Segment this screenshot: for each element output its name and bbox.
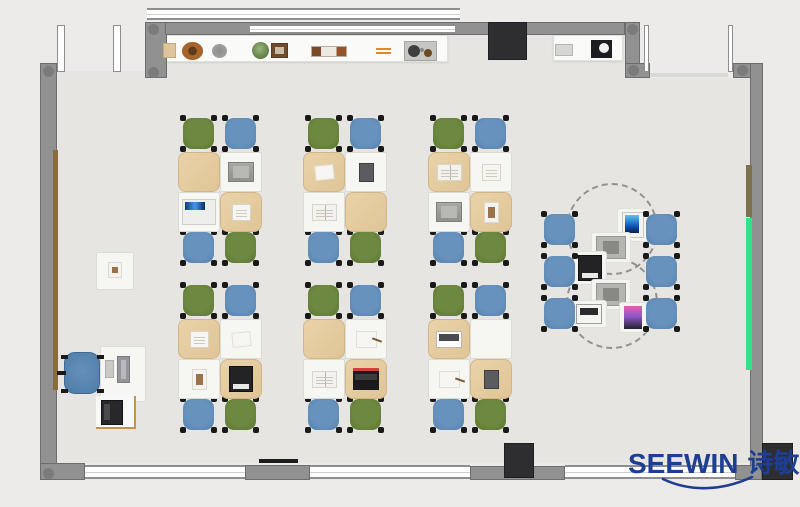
- window-bottom-2: [310, 465, 470, 479]
- entry-door-leaf-2: [113, 25, 121, 72]
- collab-chair-blue: [646, 298, 677, 329]
- desk-item-paper: [314, 164, 334, 181]
- desk-item-laptop-blue: [182, 199, 216, 225]
- desk-item-book: [312, 371, 337, 388]
- floor-door-gap: [58, 71, 145, 78]
- student-chair-green: [225, 232, 256, 263]
- student-chair-green: [475, 232, 506, 263]
- collab-device-laptop-white: [576, 304, 602, 324]
- logo-latin-text: SEEWIN: [628, 450, 738, 478]
- student-chair-blue: [433, 399, 464, 430]
- collab-chair-blue: [544, 256, 575, 287]
- desk-item-laptop-gray: [228, 162, 254, 182]
- student-chair-green: [433, 285, 464, 316]
- teacher-keyboard: [105, 360, 114, 378]
- student-chair-blue: [475, 285, 506, 316]
- pillar-top: [488, 22, 527, 60]
- student-chair-blue: [433, 232, 464, 263]
- window-strip-2: [728, 25, 733, 72]
- window-top-wall-glazing: [250, 24, 455, 34]
- window-bottom-1: [85, 465, 245, 479]
- decor-basket: [182, 42, 203, 60]
- desk-item-notebook: [232, 204, 251, 221]
- desk-item-laptop-gray: [436, 202, 462, 222]
- wall-corner-dot: [43, 468, 54, 479]
- wood-rail-left: [53, 150, 58, 390]
- desk-item-tablet-dark: [484, 370, 499, 389]
- decor-box-gray: [555, 44, 573, 56]
- wall-board-olive: [746, 165, 752, 217]
- student-chair-green: [350, 232, 381, 263]
- glass-partition-line: [650, 73, 728, 77]
- desk-item-paper-pen: [356, 331, 377, 348]
- logo-swoosh-icon: [660, 476, 755, 491]
- student-chair-blue: [225, 118, 256, 149]
- decor-plant: [252, 42, 269, 59]
- window-strip-1: [644, 25, 649, 72]
- window-top-outer-band: [147, 8, 460, 20]
- collab-chair-blue: [544, 298, 575, 329]
- wall-mounted-bar: [259, 459, 298, 463]
- desk-item-book: [312, 204, 337, 221]
- student-chair-green: [183, 118, 214, 149]
- side-table-item: [108, 262, 122, 278]
- student-chair-blue: [183, 399, 214, 430]
- student-desk-covered: [303, 319, 345, 359]
- desk-item-device-white: [436, 331, 462, 348]
- classroom-floor-plan: SEEWIN 诗敏: [0, 0, 800, 507]
- decor-pens: [376, 48, 391, 54]
- collab-chair-blue: [646, 214, 677, 245]
- student-chair-blue: [350, 118, 381, 149]
- collab-chair-blue: [544, 214, 575, 245]
- seewin-logo: SEEWIN 诗敏: [628, 450, 799, 478]
- wall-corner-dot: [737, 65, 748, 76]
- desk-item-photo: [484, 202, 499, 223]
- decor-appliance: [591, 40, 612, 58]
- printer: [101, 400, 123, 425]
- teacher-monitor: [117, 356, 130, 383]
- wall-corner-dot: [148, 24, 159, 35]
- desk-item-notebook: [482, 164, 501, 181]
- student-chair-blue: [350, 285, 381, 316]
- student-desk-covered: [178, 152, 220, 192]
- desk-item-book: [437, 164, 462, 181]
- collab-device-tablet-colorful: [624, 306, 642, 329]
- wall-bottom-pier-1: [245, 465, 310, 480]
- student-chair-green: [475, 399, 506, 430]
- student-chair-blue: [475, 118, 506, 149]
- student-chair-green: [433, 118, 464, 149]
- student-desk-covered: [345, 192, 387, 232]
- desk-item-notebook: [190, 331, 209, 348]
- wall-board-green: [746, 218, 752, 370]
- decor-plate: [212, 44, 227, 58]
- teacher-office-chair: [64, 352, 100, 394]
- desk-item-paper-pen: [439, 371, 460, 388]
- student-chair-green: [183, 285, 214, 316]
- collab-chair-blue: [646, 256, 677, 287]
- decor-photo-frame: [271, 43, 288, 58]
- student-chair-green: [225, 399, 256, 430]
- collab-device-laptop-black: [578, 255, 602, 281]
- decor-box-tan: [163, 43, 176, 58]
- student-chair-green: [308, 285, 339, 316]
- student-chair-blue: [308, 399, 339, 430]
- desk-item-photo: [192, 369, 207, 390]
- desk-item-tablet-dark: [359, 163, 374, 182]
- student-chair-blue: [308, 232, 339, 263]
- decor-book-stack: [311, 46, 347, 57]
- wall-corner-dot: [43, 66, 54, 77]
- desk-item-laptop-black: [229, 366, 253, 392]
- student-chair-blue: [225, 285, 256, 316]
- logo-cjk-text: 诗敏: [747, 450, 799, 477]
- student-chair-green: [308, 118, 339, 149]
- student-desk: [470, 319, 512, 359]
- decor-tray: [404, 41, 437, 61]
- wall-corner-dot: [628, 65, 639, 76]
- wall-corner-dot: [627, 24, 638, 35]
- desk-item-laptop-red: [353, 368, 379, 390]
- student-chair-green: [350, 399, 381, 430]
- desk-item-paper: [231, 331, 251, 348]
- entry-door-leaf-1: [57, 25, 65, 72]
- wall-corner-dot: [148, 67, 159, 78]
- pillar-bottom-middle: [504, 443, 534, 478]
- student-chair-blue: [183, 232, 214, 263]
